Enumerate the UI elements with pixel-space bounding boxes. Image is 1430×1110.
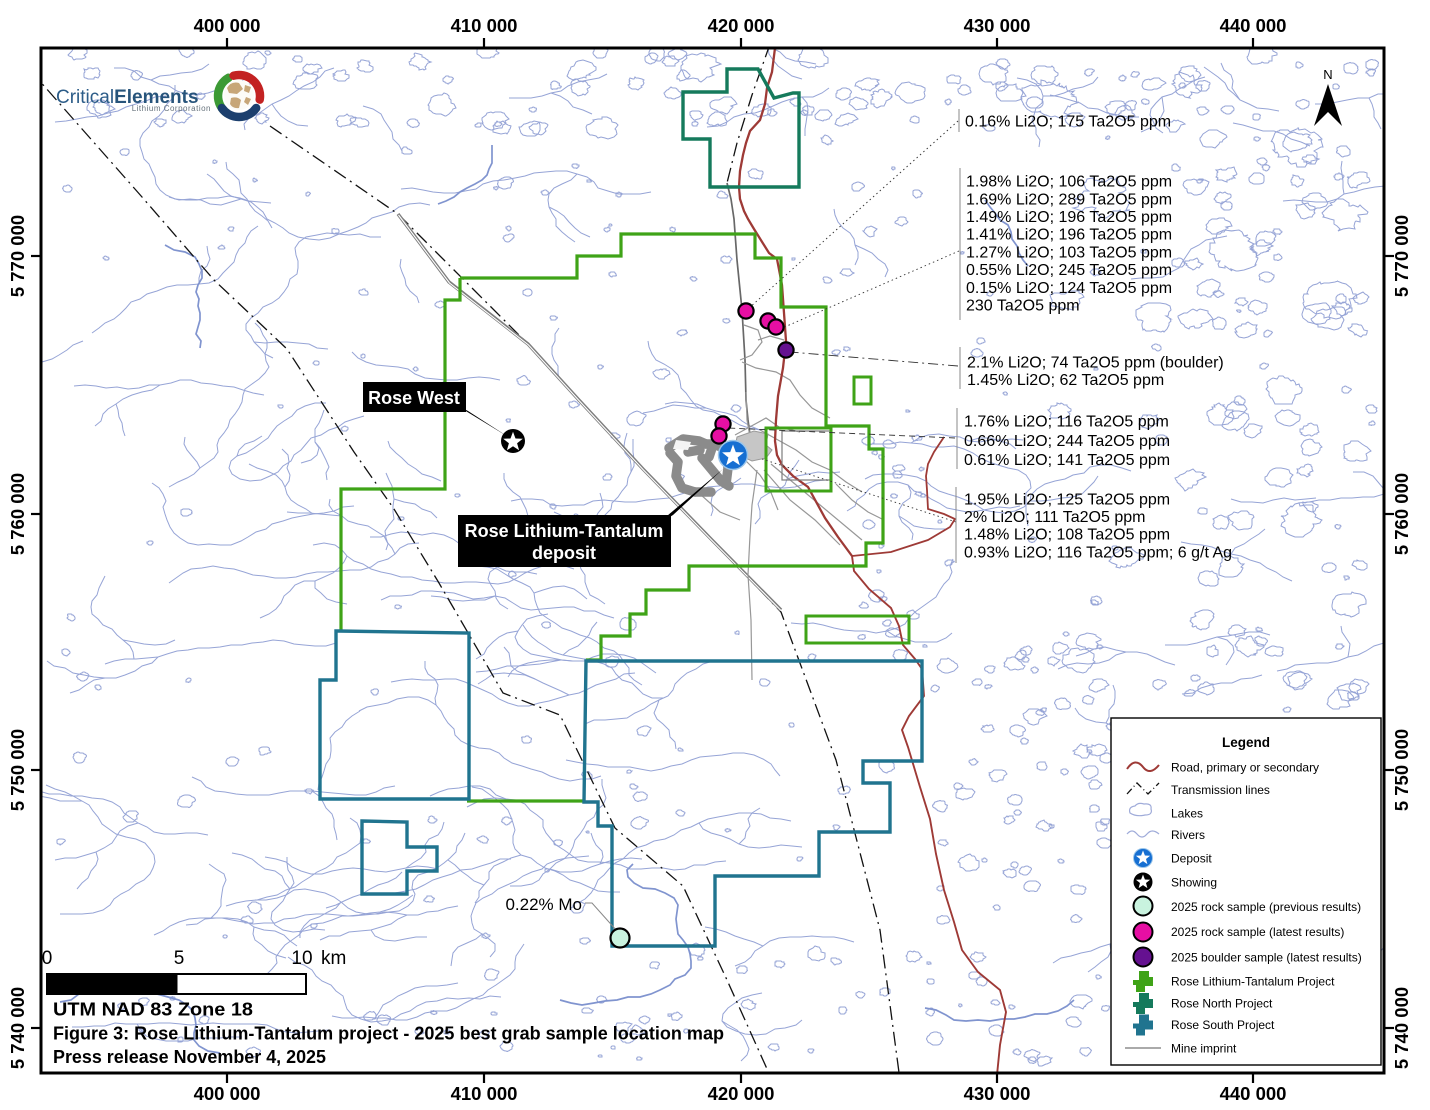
- svg-text:1.95% Li2O; 125 Ta2O5 ppm: 1.95% Li2O; 125 Ta2O5 ppm: [964, 491, 1170, 508]
- svg-text:1.98% Li2O; 106 Ta2O5 ppm: 1.98% Li2O; 106 Ta2O5 ppm: [966, 174, 1172, 191]
- svg-text:230 Ta2O5 ppm: 230 Ta2O5 ppm: [966, 298, 1080, 315]
- svg-text:0: 0: [42, 948, 53, 969]
- svg-text:430 000: 430 000: [964, 1083, 1031, 1104]
- svg-text:Rose Lithium-Tantalum Project: Rose Lithium-Tantalum Project: [1171, 974, 1335, 988]
- svg-text:UTM NAD 83 Zone 18: UTM NAD 83 Zone 18: [53, 999, 253, 1020]
- svg-text:1.45% Li2O; 62 Ta2O5 ppm: 1.45% Li2O; 62 Ta2O5 ppm: [967, 372, 1164, 389]
- svg-text:1.49% Li2O; 196 Ta2O5 ppm: 1.49% Li2O; 196 Ta2O5 ppm: [966, 209, 1172, 226]
- svg-text:0.66% Li2O; 244 Ta2O5 ppm: 0.66% Li2O; 244 Ta2O5 ppm: [964, 433, 1170, 450]
- svg-text:Legend: Legend: [1222, 735, 1270, 750]
- svg-text:1.69% Li2O; 289 Ta2O5 ppm: 1.69% Li2O; 289 Ta2O5 ppm: [966, 191, 1172, 208]
- svg-text:0.61% Li2O; 141 Ta2O5 ppm: 0.61% Li2O; 141 Ta2O5 ppm: [964, 452, 1170, 469]
- svg-text:N: N: [1323, 67, 1332, 82]
- svg-text:Figure 3: Rose Lithium-Tantalu: Figure 3: Rose Lithium-Tantalum project …: [53, 1023, 724, 1044]
- svg-text:Press release November 4, 2025: Press release November 4, 2025: [53, 1046, 326, 1067]
- svg-text:2% Li2O; 111 Ta2O5 ppm: 2% Li2O; 111 Ta2O5 ppm: [964, 509, 1145, 526]
- svg-text:10: 10: [291, 948, 312, 969]
- svg-text:420 000: 420 000: [708, 15, 775, 36]
- svg-text:410 000: 410 000: [451, 15, 518, 36]
- svg-text:Lakes: Lakes: [1171, 806, 1203, 820]
- svg-text:440 000: 440 000: [1220, 15, 1287, 36]
- svg-text:0.22% Mo: 0.22% Mo: [505, 895, 582, 914]
- svg-text:2025 rock sample (previous res: 2025 rock sample (previous results): [1171, 900, 1361, 914]
- svg-text:Rivers: Rivers: [1171, 828, 1205, 842]
- svg-text:5 740 000: 5 740 000: [7, 987, 28, 1069]
- svg-text:5 760 000: 5 760 000: [7, 473, 28, 555]
- svg-text:2025 boulder sample (latest re: 2025 boulder sample (latest results): [1171, 950, 1362, 964]
- svg-text:Transmission lines: Transmission lines: [1171, 783, 1270, 797]
- svg-text:1.27% Li2O; 103 Ta2O5 ppm: 1.27% Li2O; 103 Ta2O5 ppm: [966, 244, 1172, 261]
- svg-text:5 750 000: 5 750 000: [1391, 729, 1412, 811]
- svg-text:410 000: 410 000: [451, 1083, 518, 1104]
- svg-text:5 760 000: 5 760 000: [1391, 473, 1412, 555]
- svg-text:440 000: 440 000: [1220, 1083, 1287, 1104]
- svg-text:deposit: deposit: [532, 543, 596, 563]
- svg-text:5 770 000: 5 770 000: [7, 215, 28, 297]
- svg-text:Mine imprint: Mine imprint: [1171, 1041, 1237, 1055]
- svg-text:0.15% Li2O; 124 Ta2O5 ppm: 0.15% Li2O; 124 Ta2O5 ppm: [966, 280, 1172, 297]
- svg-text:5 750 000: 5 750 000: [7, 729, 28, 811]
- svg-text:400 000: 400 000: [194, 15, 261, 36]
- svg-text:Deposit: Deposit: [1171, 851, 1212, 865]
- svg-text:430 000: 430 000: [964, 15, 1031, 36]
- svg-text:5 740 000: 5 740 000: [1391, 987, 1412, 1069]
- svg-text:0.93% Li2O; 116 Ta2O5 ppm; 6 g: 0.93% Li2O; 116 Ta2O5 ppm; 6 g/t Ag: [964, 544, 1232, 561]
- svg-text:Showing: Showing: [1171, 875, 1217, 889]
- svg-text:400 000: 400 000: [194, 1083, 261, 1104]
- svg-text:1.48% Li2O; 108 Ta2O5 ppm: 1.48% Li2O; 108 Ta2O5 ppm: [964, 527, 1170, 544]
- svg-text:0.16% Li2O; 175 Ta2O5 ppm: 0.16% Li2O; 175 Ta2O5 ppm: [965, 113, 1171, 130]
- svg-text:420 000: 420 000: [708, 1083, 775, 1104]
- svg-text:Rose South Project: Rose South Project: [1171, 1018, 1275, 1032]
- svg-text:Rose Lithium-Tantalum: Rose Lithium-Tantalum: [465, 521, 664, 541]
- svg-text:Lithium Corporation: Lithium Corporation: [132, 104, 211, 113]
- svg-text:Rose West: Rose West: [368, 388, 460, 408]
- svg-text:0.55% Li2O; 245 Ta2O5 ppm: 0.55% Li2O; 245 Ta2O5 ppm: [966, 262, 1172, 279]
- svg-text:1.76% Li2O; 116 Ta2O5 ppm: 1.76% Li2O; 116 Ta2O5 ppm: [964, 414, 1169, 431]
- svg-text:1.41% Li2O; 196 Ta2O5 ppm: 1.41% Li2O; 196 Ta2O5 ppm: [966, 227, 1172, 244]
- svg-text:2.1% Li2O; 74 Ta2O5 ppm (bould: 2.1% Li2O; 74 Ta2O5 ppm (boulder): [967, 354, 1224, 371]
- svg-text:2025 rock sample (latest resul: 2025 rock sample (latest results): [1171, 925, 1344, 939]
- svg-text:5: 5: [174, 948, 185, 969]
- svg-text:Rose North Project: Rose North Project: [1171, 996, 1273, 1010]
- svg-text:Road, primary or secondary: Road, primary or secondary: [1171, 760, 1319, 774]
- svg-text:5 770 000: 5 770 000: [1391, 215, 1412, 297]
- svg-text:km: km: [321, 948, 346, 969]
